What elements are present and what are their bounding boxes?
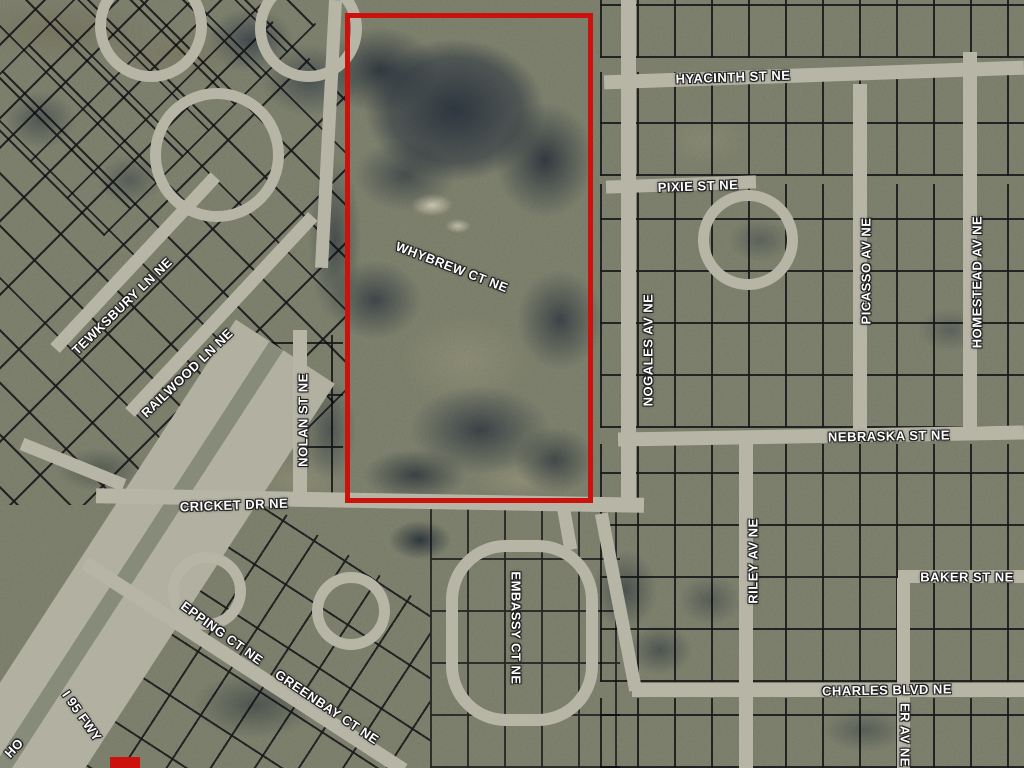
street-label-hyacinth-st: HYACINTH ST NE [675, 68, 790, 85]
street-label-riley-av: RILEY AV NE [747, 518, 760, 603]
street-label-pixie-st: PIXIE ST NE [657, 178, 738, 194]
street-label-nogales-av: NOGALES AV NE [642, 294, 655, 407]
street-label-embassy-ct: EMBASSY CT NE [510, 571, 523, 684]
street-label-greenbay-ct: GREENBAY CT NE [273, 668, 381, 747]
street-label-homestead-av: HOMESTEAD AV NE [971, 216, 984, 348]
street-label-epping-ct: EPPING CT NE [179, 599, 266, 667]
street-labels-layer: HYACINTH ST NEPIXIE ST NEWHYBREW CT NENO… [0, 0, 1024, 768]
street-label-cricket-dr: CRICKET DR NE [180, 497, 289, 514]
street-label-baker-st: BAKER ST NE [920, 571, 1014, 584]
street-label-whybrew-ct: WHYBREW CT NE [394, 240, 510, 295]
aerial-parcel-map: HYACINTH ST NEPIXIE ST NEWHYBREW CT NENO… [0, 0, 1024, 768]
street-label-railwood-ln: RAILWOOD LN NE [139, 326, 235, 419]
street-label-charles-blvd: CHARLES BLVD NE [822, 682, 952, 697]
street-label-nolan-st: NOLAN ST NE [297, 373, 310, 467]
street-label-nebraska-st: NEBRASKA ST NE [828, 428, 950, 443]
street-label-i95-fwy: I 95 FWY [60, 688, 104, 743]
street-label-er-av: ER AV NE [899, 703, 912, 767]
street-label-tewksbury-ln: TEWKSBURY LN NE [70, 255, 175, 357]
street-label-partial-ho: HO [2, 736, 25, 760]
street-label-picasso-av: PICASSO AV NE [860, 218, 873, 325]
